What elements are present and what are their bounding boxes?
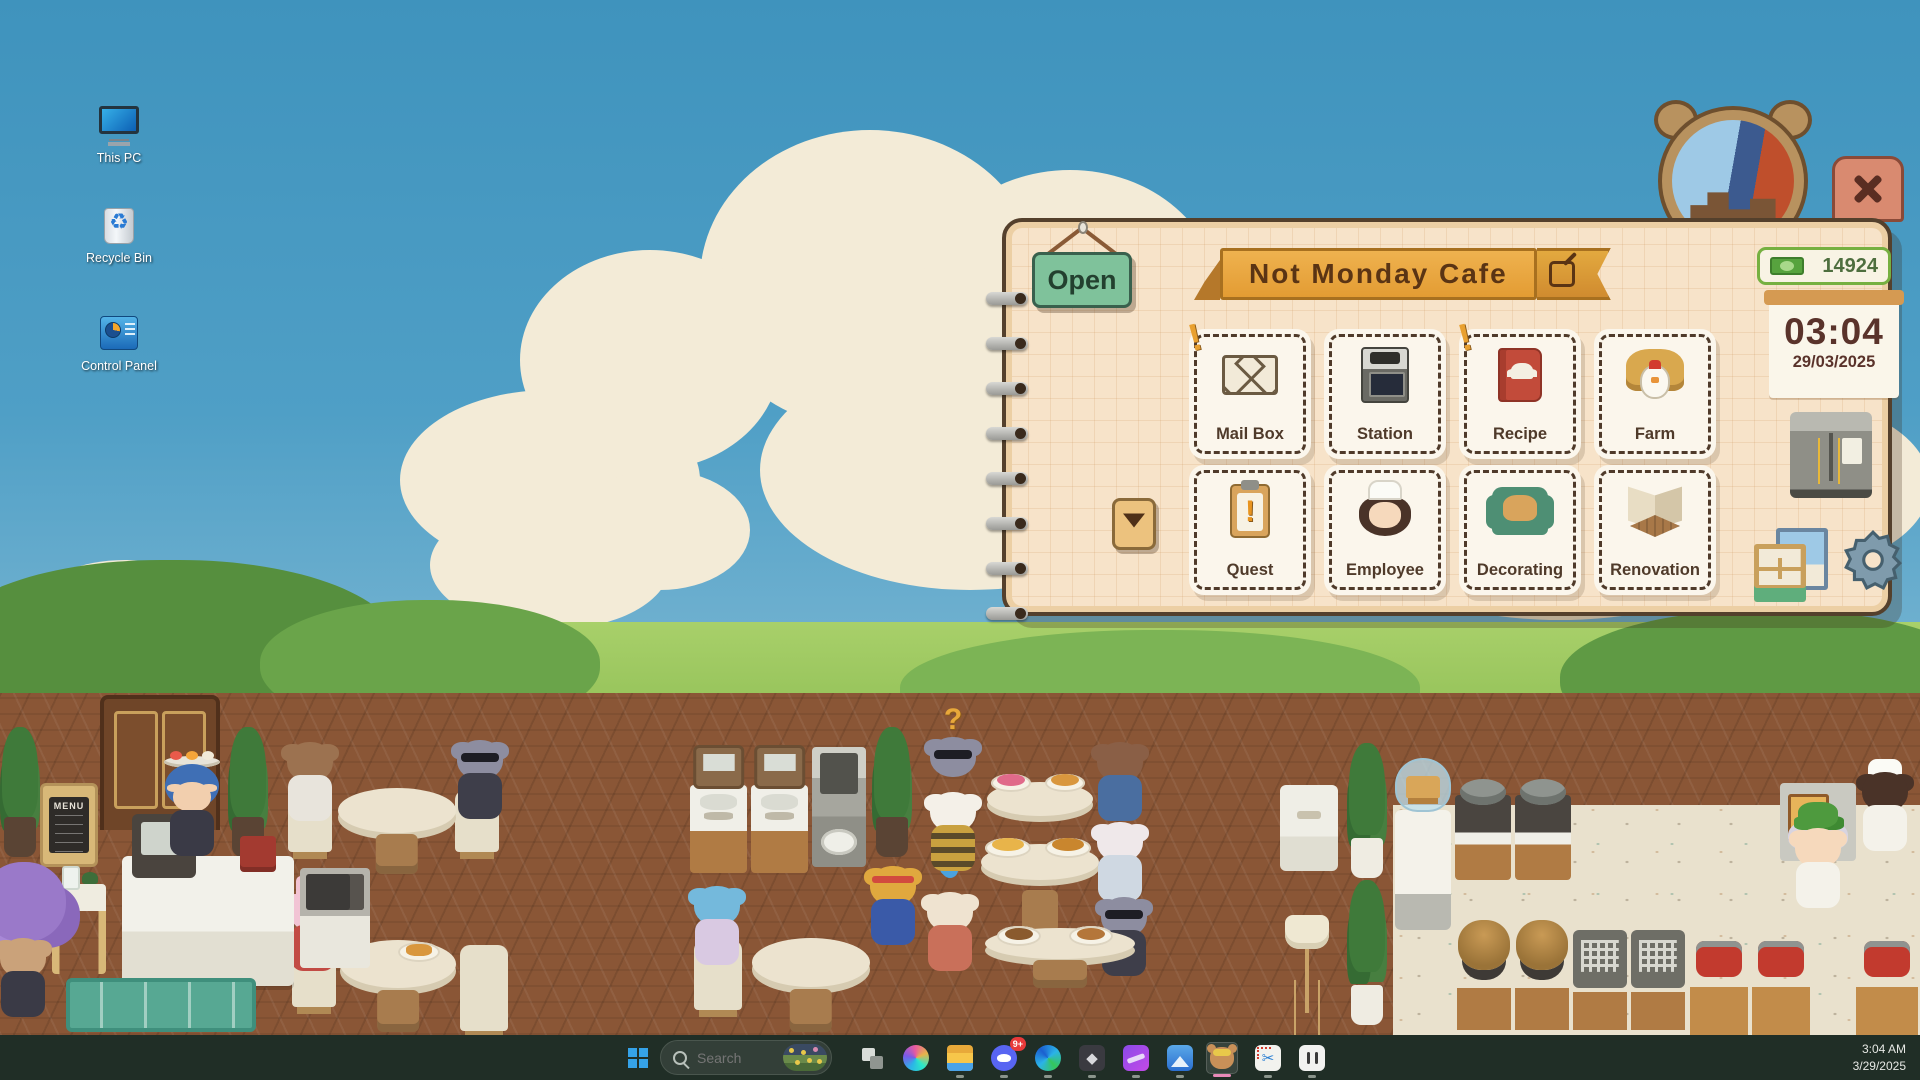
- menu-tab-mailbox[interactable]: ! Mail Box: [1194, 334, 1306, 454]
- chair: [460, 945, 508, 1031]
- menu-tab-decorating[interactable]: ! Decorating: [1464, 470, 1576, 590]
- desktop: MENU ?: [0, 0, 1920, 1080]
- menu-tab-employee[interactable]: ! Employee: [1329, 470, 1441, 590]
- copilot-button[interactable]: [900, 1042, 932, 1074]
- calendar-top-bar: [1764, 290, 1904, 305]
- open-status-sign[interactable]: Open: [1032, 252, 1132, 308]
- photos-icon: [1167, 1045, 1193, 1071]
- desktop-icon-recycle-bin[interactable]: ♻ Recycle Bin: [80, 204, 158, 266]
- game-date: 29/03/2025: [1769, 353, 1899, 372]
- white-cabinet: [1280, 785, 1338, 871]
- desktop-icon-control-panel[interactable]: Control Panel: [80, 312, 158, 374]
- snipping-tool-button[interactable]: ✂: [1252, 1042, 1284, 1074]
- edit-pencil-icon: [1549, 261, 1575, 287]
- spiral-ring: [986, 337, 1028, 350]
- spiral-ring: [986, 382, 1028, 395]
- decorating-icon: [1492, 487, 1548, 535]
- open-sign-label: Open: [1047, 265, 1116, 296]
- waiter-carrying-sushi: [163, 772, 221, 890]
- unity-button[interactable]: ◆: [1076, 1042, 1108, 1074]
- rice-cooker: [1515, 920, 1569, 1030]
- pinned-app-button[interactable]: [1296, 1042, 1328, 1074]
- potted-plant: [0, 727, 40, 857]
- settings-button[interactable]: [1840, 522, 1906, 596]
- cafe-menu-panel: Open Not Monday Cafe 14924 03:04 29/03/2…: [1002, 218, 1892, 616]
- soup-pot-table: [1690, 935, 1748, 1035]
- notebook-panel: Open Not Monday Cafe 14924 03:04 29/03/2…: [1002, 218, 1892, 616]
- recycle-bin-icon: ♻: [96, 204, 142, 248]
- search-box[interactable]: [660, 1040, 832, 1075]
- wolf-customer-sunglasses: [452, 740, 508, 836]
- desktop-icon-this-pc[interactable]: This PC: [80, 104, 158, 166]
- taskbar: 9+ ◆ ✂ 3:04 AM 3/29/2025: [0, 1035, 1920, 1080]
- station-icon: [1361, 347, 1409, 403]
- rabbit-customer: [1092, 822, 1148, 892]
- file-explorer-icon: [947, 1045, 973, 1071]
- cake-display-stand: [1395, 810, 1451, 930]
- windows-logo-icon: [628, 1048, 648, 1068]
- edge-icon: [1035, 1045, 1061, 1071]
- snipping-tool-icon: ✂: [1255, 1045, 1281, 1071]
- clock-calendar: 03:04 29/03/2025: [1769, 290, 1899, 398]
- renovation-icon: [1628, 485, 1682, 537]
- cafe-table: [338, 788, 456, 874]
- spiral-ring: [986, 517, 1028, 530]
- spiral-ring: [986, 292, 1028, 305]
- chef-back: [1856, 772, 1914, 912]
- task-view-icon: [859, 1045, 885, 1071]
- cafe-table: [985, 928, 1135, 988]
- sign-pin: [1078, 221, 1088, 234]
- spiral-ring: [986, 607, 1028, 620]
- soup-pot-table: [1752, 935, 1810, 1035]
- menu-sign-board: MENU: [40, 783, 98, 867]
- edit-cafe-name-button[interactable]: [1537, 248, 1611, 300]
- wok-station: [1455, 795, 1511, 880]
- taskbar-time: 3:04 AM: [1862, 1041, 1906, 1057]
- wok-station: [1515, 795, 1571, 880]
- recipe-icon: [1498, 348, 1542, 402]
- banner-fold: [1194, 260, 1220, 300]
- waiter-staff: [0, 938, 46, 1035]
- chef-leek-hair: [1790, 822, 1846, 942]
- kitchen-sink-counter: [690, 785, 747, 873]
- red-counter-box: [240, 836, 276, 872]
- menu-tab-recipe[interactable]: ! Recipe: [1464, 334, 1576, 454]
- notification-badge: !: [1454, 316, 1477, 361]
- grill-station: [1631, 930, 1685, 1030]
- menu-sign-text: MENU: [49, 797, 89, 853]
- cafe-game-icon: [1210, 1047, 1234, 1069]
- search-daily-image: [783, 1044, 827, 1071]
- grill-station: [1573, 930, 1627, 1030]
- kitchen-sink-counter: [751, 785, 808, 873]
- teal-rug: [66, 978, 256, 1032]
- photos-button[interactable]: [1164, 1042, 1196, 1074]
- tiered-serving-table: [987, 782, 1093, 932]
- taskbar-clock[interactable]: 3:04 AM 3/29/2025: [1853, 1035, 1906, 1080]
- control-panel-icon: [96, 312, 142, 356]
- edge-button[interactable]: [1032, 1042, 1064, 1074]
- gear-icon: [1840, 522, 1906, 596]
- white-app-icon: [1299, 1045, 1325, 1071]
- money-amount: 14924: [1804, 255, 1878, 278]
- floor-lamp: [1282, 915, 1332, 1025]
- fridge-storage-button[interactable]: [1790, 412, 1872, 498]
- tall-plant: [1347, 880, 1387, 1025]
- unity-icon: ◆: [1079, 1045, 1105, 1071]
- spiral-ring: [986, 472, 1028, 485]
- employee-icon: [1359, 484, 1411, 538]
- sheep-customer: [918, 892, 982, 996]
- oven-tower: [812, 747, 866, 867]
- cafe-game-button[interactable]: [1206, 1042, 1238, 1074]
- soup-pot-table: [1856, 935, 1918, 1035]
- rice-cooker: [1457, 920, 1511, 1030]
- clipchamp-button[interactable]: [1120, 1042, 1152, 1074]
- potted-plant: [872, 727, 912, 857]
- panda-bee-customer: [924, 792, 982, 892]
- start-button[interactable]: [622, 1042, 654, 1074]
- copilot-icon: [903, 1045, 929, 1071]
- game-time: 03:04: [1769, 312, 1899, 353]
- money-bill-icon: [1770, 257, 1804, 275]
- file-explorer-button[interactable]: [944, 1042, 976, 1074]
- spiral-ring: [986, 562, 1028, 575]
- menu-tab-farm[interactable]: ! Farm: [1599, 334, 1711, 454]
- menu-tab-quest[interactable]: ! ! Quest: [1194, 470, 1306, 590]
- scenery-button[interactable]: [1754, 528, 1828, 602]
- menu-tab-station[interactable]: ! Station: [1329, 334, 1441, 454]
- giraffe-customer: [866, 866, 920, 970]
- active-app-indicator: [1213, 1074, 1231, 1077]
- cafe-name: Not Monday Cafe: [1220, 248, 1537, 300]
- taskbar-date: 3/29/2025: [1853, 1058, 1906, 1074]
- search-icon: [673, 1051, 687, 1065]
- raccoon-customer: [282, 742, 338, 838]
- close-button[interactable]: [1832, 156, 1904, 222]
- search-input[interactable]: [695, 1049, 783, 1067]
- menu-tab-renovation[interactable]: ! Renovation: [1599, 470, 1711, 590]
- task-view-button[interactable]: [856, 1042, 888, 1074]
- mailbox-icon: [1222, 355, 1278, 395]
- collapse-panel-button[interactable]: [1112, 498, 1156, 550]
- farm-icon: [1626, 349, 1684, 401]
- wolf-customer-question: ?: [924, 737, 982, 807]
- cafe-table: [752, 938, 870, 1032]
- discord-notification-badge: 9+: [1010, 1037, 1026, 1051]
- notification-badge: !: [1184, 316, 1207, 361]
- this-pc-icon: [96, 104, 142, 148]
- microwave-cabinet: [300, 868, 370, 968]
- elephant-customer: [686, 886, 748, 990]
- cafe-name-banner: Not Monday Cafe: [1194, 248, 1611, 300]
- clipchamp-icon: [1123, 1045, 1149, 1071]
- money-counter[interactable]: 14924: [1757, 247, 1891, 285]
- spiral-ring: [986, 427, 1028, 440]
- discord-button[interactable]: 9+: [988, 1042, 1020, 1074]
- quest-icon: !: [1230, 484, 1270, 538]
- tall-plant: [1347, 743, 1387, 878]
- window-icon: [1754, 544, 1806, 602]
